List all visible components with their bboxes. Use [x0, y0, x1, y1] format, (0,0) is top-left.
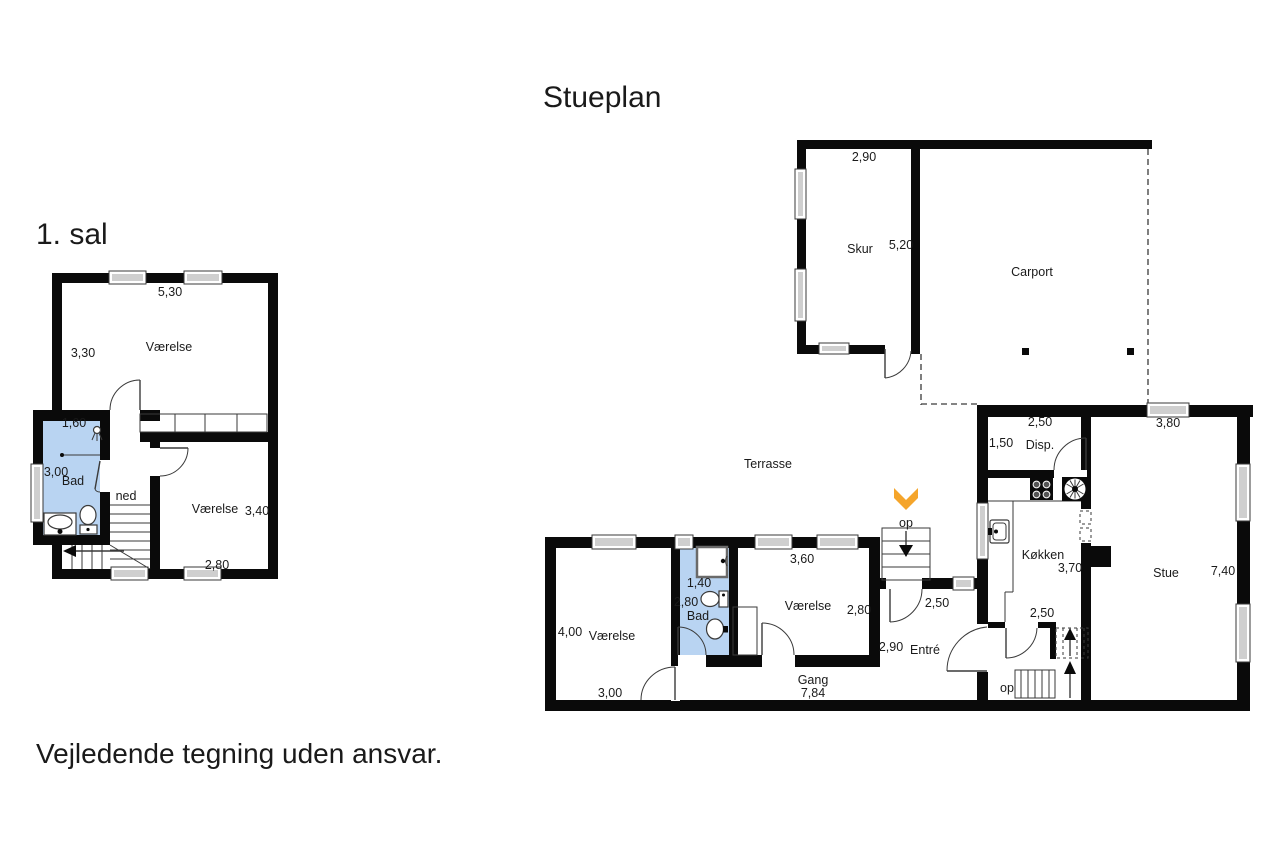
ground-floor-plan: 4,00 Værelse 3,00 1,40 2,80 Bad 3,60 Vær… — [545, 140, 1253, 711]
shower-icon — [697, 547, 727, 577]
dim-label: 7,40 — [1211, 564, 1235, 578]
room-label: Værelse — [146, 340, 193, 354]
room-label: Værelse — [192, 502, 239, 516]
room-label: Gang — [798, 673, 829, 687]
dim-label: 2,80 — [674, 595, 698, 609]
first-floor-title: 1. sal — [36, 218, 108, 251]
dim-label: 3,30 — [71, 346, 95, 360]
dim-label: 4,00 — [558, 625, 582, 639]
room-label: Terrasse — [744, 457, 792, 471]
first-floor-plan: 5,30 Værelse 3,30 1,60 3,00 Bad ned Være… — [31, 271, 278, 580]
ground-floor-title: Stueplan — [543, 81, 661, 114]
walls — [545, 405, 1253, 711]
stairs-label: ned — [116, 489, 137, 503]
dim-label: 1,40 — [687, 576, 711, 590]
dim-label: 1,60 — [62, 416, 86, 430]
room-label: Skur — [847, 242, 873, 256]
stove-icon — [1030, 478, 1053, 500]
chimney — [1089, 546, 1111, 567]
floor-plan-drawing: 1. sal Stueplan Vejledende tegning uden … — [0, 0, 1280, 853]
shed-door-arc — [885, 351, 911, 378]
stairs-arrow-icon — [63, 545, 76, 557]
toilet-icon — [80, 506, 97, 535]
disclaimer-text: Vejledende tegning uden ansvar. — [36, 738, 442, 769]
stairs-label: op — [899, 516, 913, 530]
dim-label: 3,80 — [1156, 416, 1180, 430]
dim-label: 2,50 — [1028, 415, 1052, 429]
shed-door-opening — [885, 345, 911, 354]
labels: 4,00 Værelse 3,00 1,40 2,80 Bad 3,60 Vær… — [558, 150, 1235, 700]
dim-label: 2,80 — [205, 558, 229, 572]
stairs-arrow-icon — [1064, 661, 1076, 674]
floor-plan-page: 1. sal Stueplan Vejledende tegning uden … — [0, 0, 1280, 853]
dim-label: 3,40 — [245, 504, 269, 518]
dim-label: 3,70 — [1058, 561, 1082, 575]
dim-label: 2,50 — [925, 596, 949, 610]
dim-label: 2,50 — [1030, 606, 1054, 620]
room-label: Disp. — [1026, 438, 1054, 452]
entrance-stairs — [882, 528, 930, 580]
stairs-arrow-icon — [1064, 628, 1076, 640]
dim-label: 5,30 — [158, 285, 182, 299]
extractor-fan-icon — [1062, 477, 1088, 501]
carport-post — [1022, 348, 1029, 355]
shed — [795, 140, 920, 378]
sink-icon — [44, 513, 76, 535]
room-label: Entré — [910, 643, 940, 657]
room-label: Værelse — [785, 599, 832, 613]
dim-label: 3,00 — [598, 686, 622, 700]
dim-label: 2,80 — [847, 603, 871, 617]
dim-label: 1,50 — [989, 436, 1013, 450]
room-label: Bad — [62, 474, 84, 488]
dim-label: 3,60 — [790, 552, 814, 566]
dim-label: 2,90 — [852, 150, 876, 164]
carport-post — [1127, 348, 1134, 355]
kitchen-sink-icon — [988, 520, 1009, 543]
room-label: Carport — [1011, 265, 1053, 279]
stairs-arrow-icon — [899, 545, 913, 557]
entrance-chevron-icon — [894, 488, 918, 510]
room-label: Værelse — [589, 629, 636, 643]
toilet-icon — [701, 591, 728, 607]
room-label: Stue — [1153, 566, 1179, 580]
room-label: Bad — [687, 609, 709, 623]
room-label: Køkken — [1022, 548, 1064, 562]
house: 4,00 Værelse 3,00 1,40 2,80 Bad 3,60 Vær… — [545, 150, 1253, 711]
dim-label: 2,90 — [879, 640, 903, 654]
dim-label: 7,84 — [801, 686, 825, 700]
dim-label: 5,20 — [889, 238, 913, 252]
stairs-label: op — [1000, 681, 1014, 695]
